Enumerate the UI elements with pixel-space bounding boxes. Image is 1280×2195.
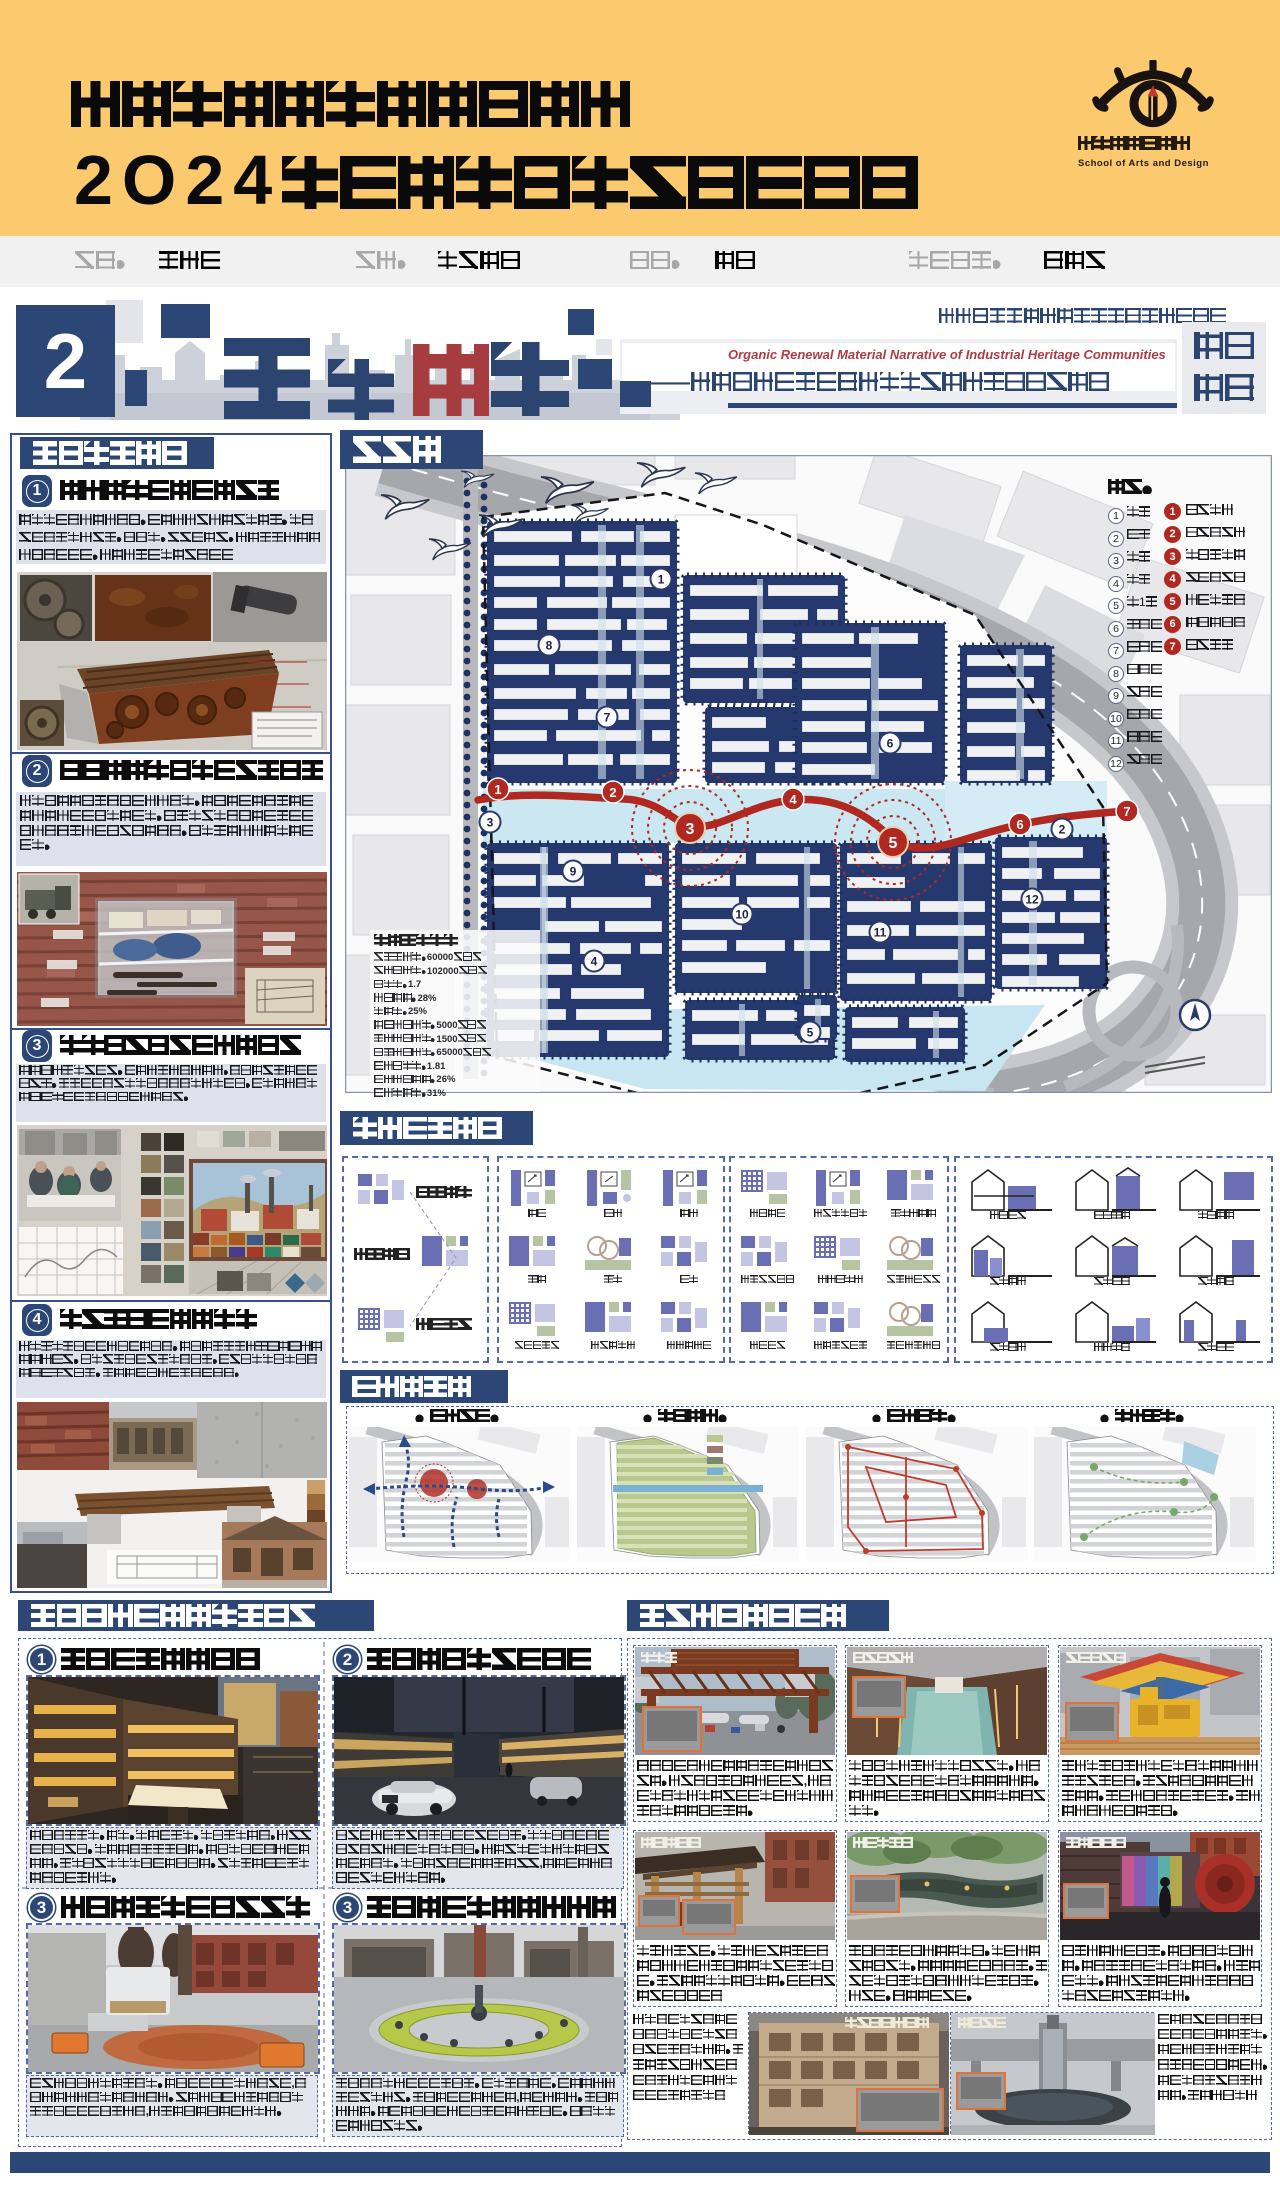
svg-text:2: 2: [609, 785, 616, 800]
svg-text:7: 7: [604, 711, 611, 725]
svg-text:3: 3: [487, 816, 494, 830]
svg-text:10: 10: [735, 908, 749, 922]
svg-text:3: 3: [686, 821, 695, 838]
svg-text:1: 1: [494, 782, 501, 797]
svg-text:8: 8: [546, 639, 553, 653]
svg-text:11: 11: [874, 926, 887, 940]
svg-text:4: 4: [591, 955, 598, 969]
svg-text:4: 4: [789, 792, 797, 807]
svg-text:6: 6: [1016, 817, 1023, 832]
svg-text:7: 7: [1123, 804, 1130, 819]
svg-text:5: 5: [889, 835, 898, 852]
svg-text:5: 5: [807, 1026, 814, 1040]
svg-text:1: 1: [658, 573, 665, 587]
svg-text:6: 6: [887, 737, 894, 751]
svg-text:2: 2: [1059, 823, 1066, 837]
svg-text:9: 9: [570, 865, 577, 879]
svg-text:12: 12: [1025, 893, 1039, 907]
